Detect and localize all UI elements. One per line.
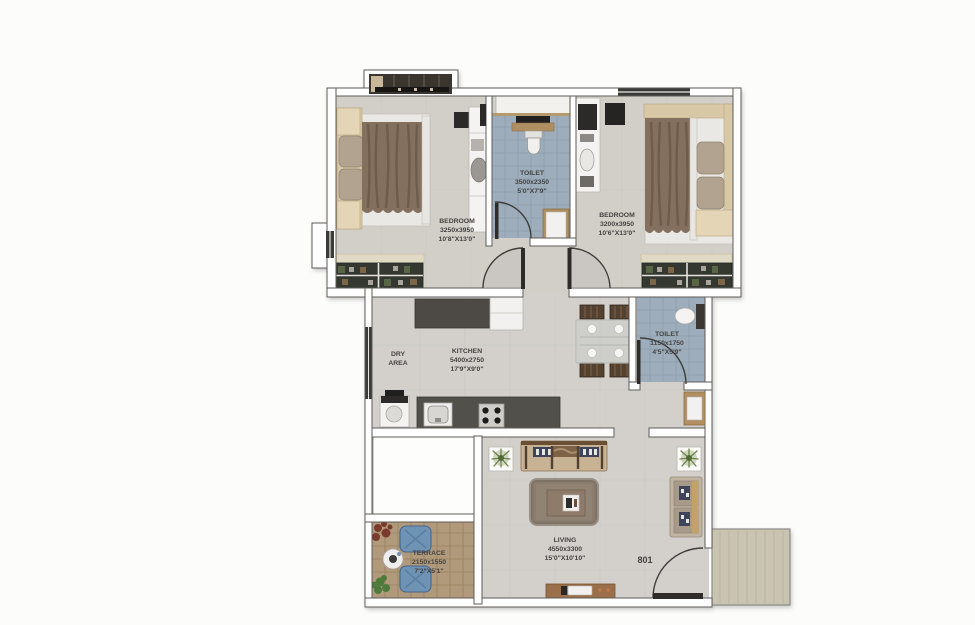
svg-text:BEDROOM: BEDROOM: [439, 218, 475, 225]
svg-text:2150x1550: 2150x1550: [412, 559, 446, 566]
svg-text:7'2"X5'1": 7'2"X5'1": [414, 568, 443, 575]
svg-text:AREA: AREA: [388, 360, 407, 367]
svg-text:TOILET: TOILET: [655, 331, 680, 338]
svg-text:TERRACE: TERRACE: [413, 550, 446, 557]
svg-text:DRY: DRY: [391, 351, 406, 358]
svg-text:3250x3950: 3250x3950: [440, 227, 474, 234]
svg-text:4550x3300: 4550x3300: [548, 546, 582, 553]
svg-text:1150x1750: 1150x1750: [650, 340, 684, 347]
svg-text:3500x2350: 3500x2350: [515, 179, 549, 186]
svg-text:801: 801: [637, 555, 652, 565]
svg-text:3200x3950: 3200x3950: [600, 221, 634, 228]
svg-text:17'9"X9'0": 17'9"X9'0": [450, 366, 483, 373]
svg-text:5400x2750: 5400x2750: [450, 357, 484, 364]
svg-text:10'6"X13'0": 10'6"X13'0": [599, 230, 636, 237]
svg-text:10'8"X13'0": 10'8"X13'0": [439, 236, 476, 243]
svg-text:KITCHEN: KITCHEN: [452, 348, 482, 355]
svg-text:15'0"X10'10": 15'0"X10'10": [545, 555, 586, 562]
svg-text:5'0"X7'9": 5'0"X7'9": [517, 188, 546, 195]
svg-text:4'5"X5'9": 4'5"X5'9": [652, 349, 681, 356]
svg-text:LIVING: LIVING: [554, 537, 577, 544]
svg-text:TOILET: TOILET: [520, 170, 545, 177]
svg-text:BEDROOM: BEDROOM: [599, 212, 635, 219]
